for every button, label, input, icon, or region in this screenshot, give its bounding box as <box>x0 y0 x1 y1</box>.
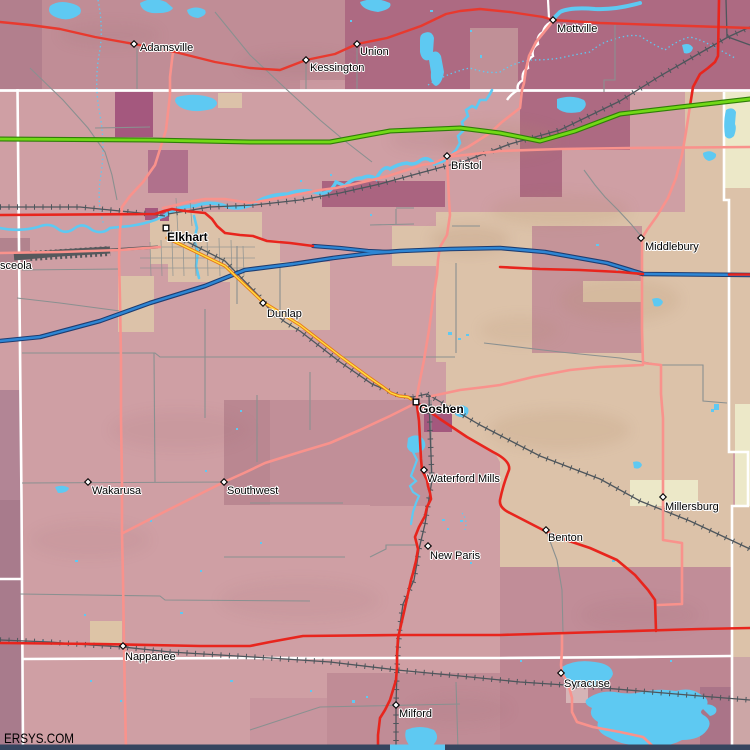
svg-text:Syracuse: Syracuse <box>564 678 610 690</box>
svg-text:Mottville: Mottville <box>557 23 597 35</box>
svg-text:Waterford Mills: Waterford Mills <box>427 473 500 485</box>
svg-text:ERSYS.COM: ERSYS.COM <box>4 730 74 746</box>
svg-text:Goshen: Goshen <box>419 402 464 416</box>
svg-text:Millersburg: Millersburg <box>665 501 719 513</box>
svg-text:Kessington: Kessington <box>310 62 364 74</box>
svg-text:Union: Union <box>360 46 389 58</box>
svg-text:Bristol: Bristol <box>451 160 482 172</box>
svg-text:Adamsville: Adamsville <box>140 42 193 54</box>
svg-text:Milford: Milford <box>399 708 432 720</box>
svg-text:Wakarusa: Wakarusa <box>92 485 142 497</box>
svg-text:Middlebury: Middlebury <box>645 241 699 253</box>
svg-text:Elkhart: Elkhart <box>167 230 208 244</box>
svg-text:Nappanee: Nappanee <box>125 651 176 663</box>
svg-text:Dunlap: Dunlap <box>267 308 302 320</box>
svg-text:New Paris: New Paris <box>430 550 481 562</box>
svg-text:sceola: sceola <box>0 260 33 272</box>
svg-text:Southwest: Southwest <box>227 485 278 497</box>
svg-text:Benton: Benton <box>548 532 583 544</box>
